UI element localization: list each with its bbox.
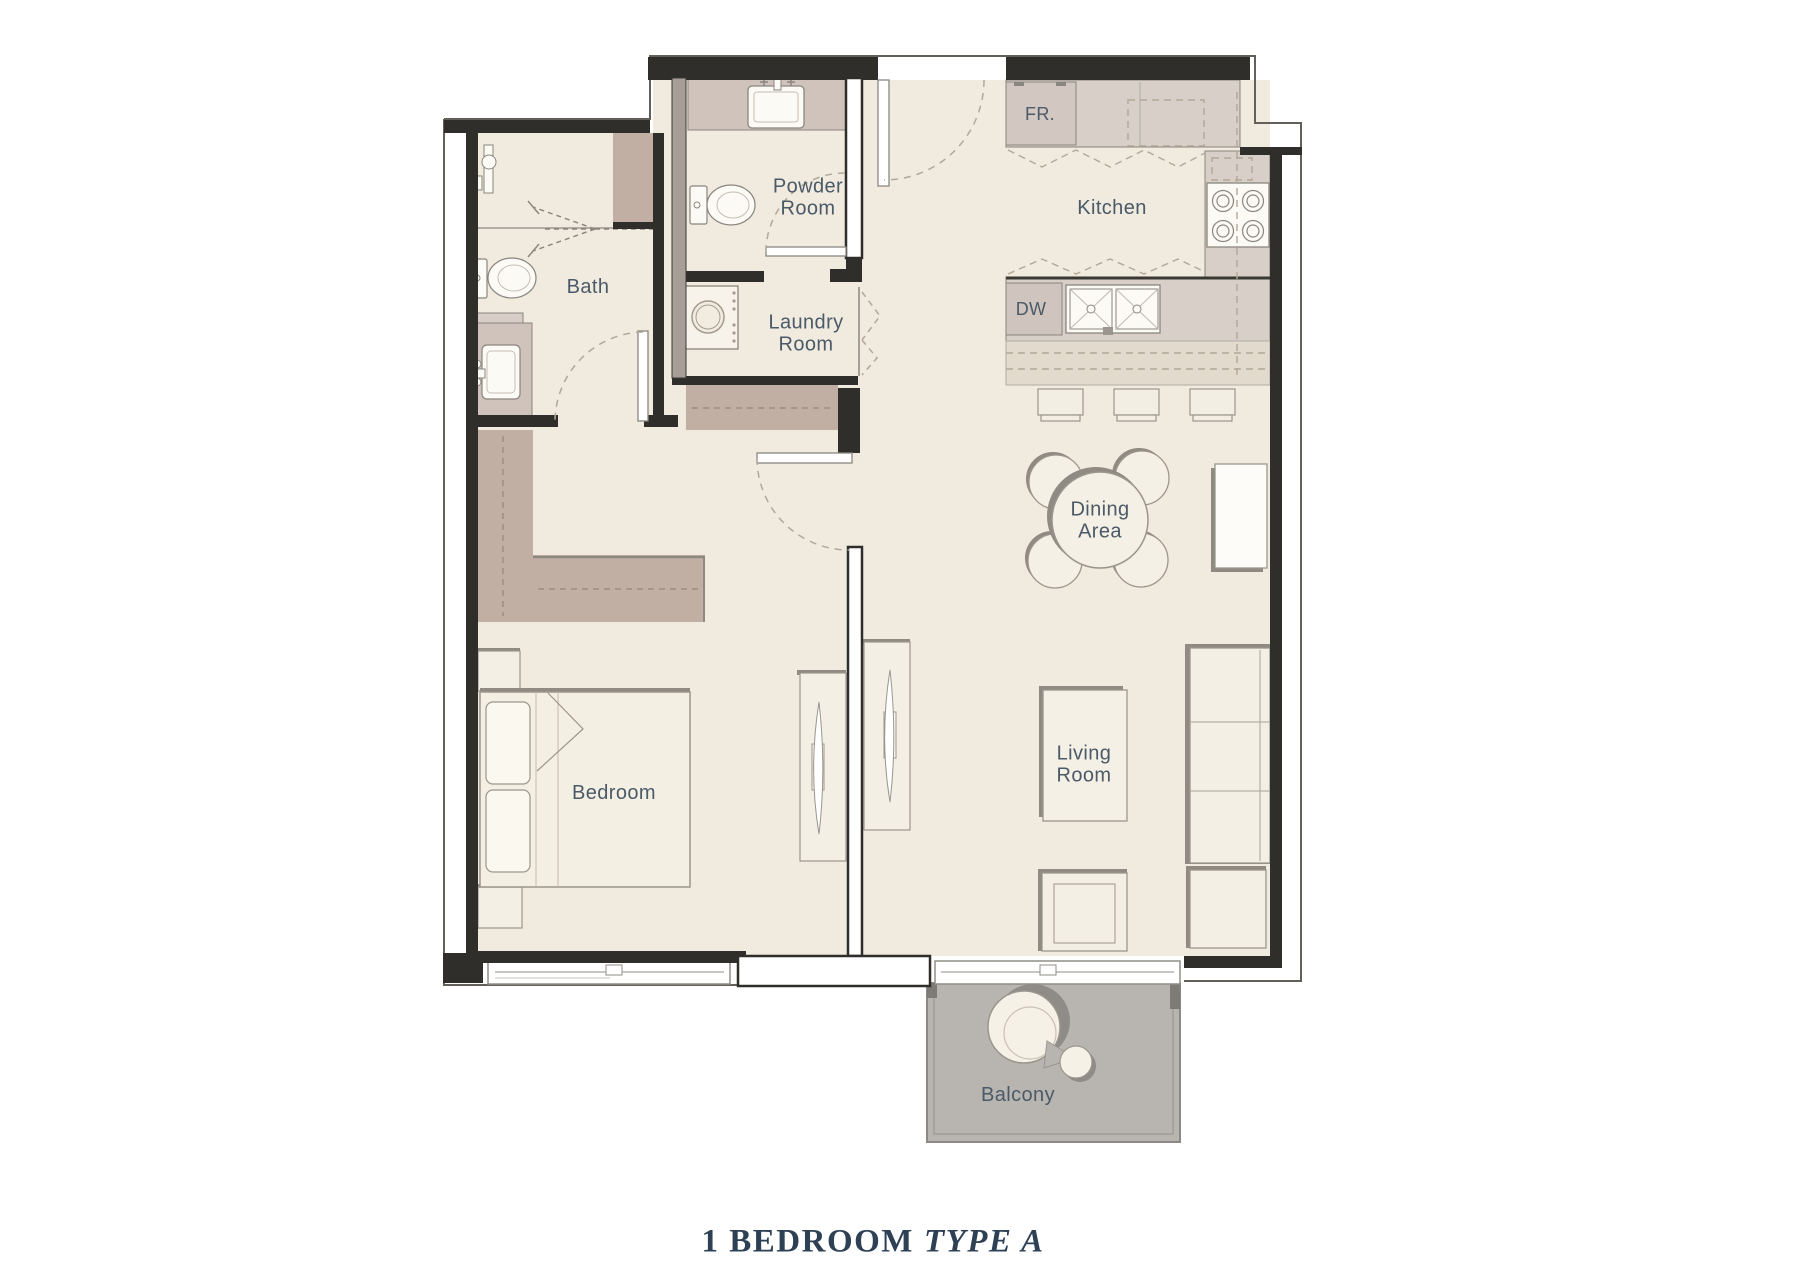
kitchen-sink-icon (1066, 285, 1160, 335)
console-cabinet-icon (1211, 464, 1267, 572)
tv-unit-living-icon (861, 639, 910, 830)
room-label-bath: Bath (567, 276, 610, 298)
room-label-laundry: Laundry Room (768, 312, 843, 357)
room-label-living: Living Room (1057, 743, 1112, 788)
floor-plan-page: Bath Powder Room Laundry Room Kitchen FR… (0, 0, 1800, 1266)
room-label-powder: Powder Room (773, 176, 843, 221)
plan-title-main: 1 BEDROOM (702, 1224, 914, 1260)
nightstand-icon (478, 651, 520, 691)
living-window (935, 961, 1180, 984)
sofa-icon (1190, 648, 1270, 863)
room-label-dining: Dining Area (1070, 499, 1129, 544)
stove-icon (1207, 183, 1269, 247)
bath-toilet-icon (470, 258, 536, 298)
powder-toilet-icon (690, 185, 755, 225)
plan-title: 1 BEDROOMTYPE A (702, 1224, 1045, 1261)
armchair-icon (1042, 873, 1127, 951)
room-label-bedroom: Bedroom (572, 782, 656, 804)
bedroom-window (488, 961, 730, 984)
floor-plan-drawing (0, 0, 1800, 1266)
room-label-kitchen: Kitchen (1077, 197, 1147, 219)
bar-stools-icon (1038, 389, 1235, 421)
poche-wall (672, 78, 686, 378)
tv-unit-bedroom-icon (797, 670, 846, 861)
plan-title-variant: TYPE A (924, 1224, 1045, 1260)
washing-machine-icon (683, 286, 738, 349)
balcony-area (927, 983, 1180, 1142)
room-label-balcony: Balcony (981, 1084, 1055, 1106)
side-table-icon (1190, 870, 1266, 948)
nightstand-icon (478, 887, 522, 928)
room-label-fridge: FR. (1025, 104, 1055, 124)
powder-sink-icon (688, 78, 846, 130)
room-label-dishwasher: DW (1016, 299, 1047, 319)
